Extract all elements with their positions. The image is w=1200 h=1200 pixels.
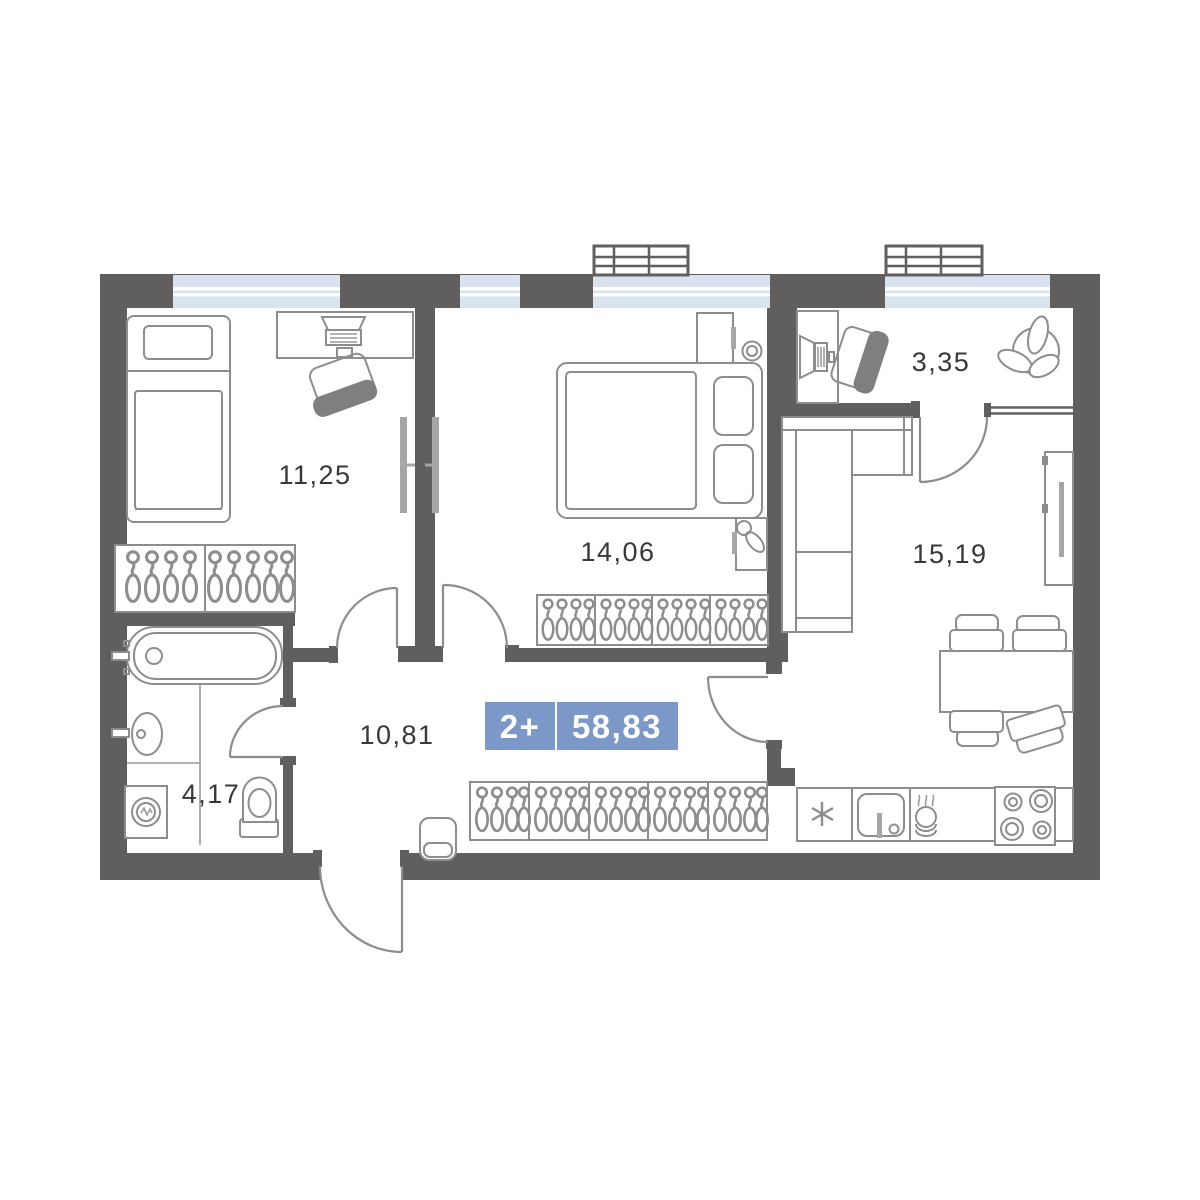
- wall-bottom-left: [100, 853, 320, 880]
- floorplan-page: 11,25 14,06 3,35 15,19 10,81 4,17 2+ 58,…: [0, 0, 1200, 1200]
- room-bathroom: [112, 627, 282, 845]
- total-area-label: 58,83: [572, 708, 662, 745]
- wardrobe-bedroom-1: [115, 545, 295, 612]
- door-bedroom-1: [337, 588, 397, 648]
- room-bedroom-1: [115, 312, 439, 612]
- door-study: [920, 417, 987, 482]
- door-bathroom: [230, 706, 283, 757]
- wall-hallway-top-right: [505, 648, 777, 662]
- dining-set: [940, 615, 1073, 755]
- wardrobe-hallway: [470, 782, 768, 840]
- table-lamp-icon: [743, 342, 762, 361]
- wall-study-left: [767, 308, 797, 407]
- bathtub-tap-icon: [112, 652, 129, 660]
- radiator-panel-left: [400, 417, 407, 513]
- dining-chair: [950, 615, 1003, 651]
- wall-jamb-kitchen-door-top: [766, 662, 782, 674]
- wall-bathroom-right-lower: [283, 756, 293, 853]
- nightstand-bottom: [732, 518, 767, 570]
- tall-cabinet: [1043, 452, 1073, 585]
- wall-hallway-top-left: [283, 648, 337, 662]
- window-bedroom-2-small: [460, 275, 520, 308]
- double-bed: [557, 363, 762, 518]
- wall-jamb-entrance-right: [400, 850, 409, 867]
- wall-living-left-lower: [767, 742, 781, 770]
- single-bed: [127, 316, 230, 522]
- desk: [277, 312, 413, 358]
- floorplan-drawing: 11,25 14,06 3,35 15,19 10,81 4,17 2+ 58,…: [0, 0, 1200, 1200]
- wall-bottom-right: [402, 853, 1100, 880]
- door-kitchen-living: [708, 677, 768, 742]
- corner-sofa: [782, 417, 912, 632]
- wall-partition-foot: [398, 646, 443, 662]
- apartment-badge: 2+ 58,83: [485, 702, 678, 750]
- washing-machine: [125, 786, 167, 838]
- wall-study-bottom: [767, 403, 915, 417]
- entrance-bench: [420, 818, 456, 860]
- room-area-label-bedroom-1: 11,25: [278, 460, 351, 490]
- window-bedroom-1: [173, 275, 340, 308]
- bathtub: [112, 627, 282, 684]
- balcony-railing-1: [594, 246, 688, 275]
- dining-chair: [950, 711, 1003, 746]
- door-entrance: [320, 866, 402, 952]
- wall-right: [1073, 274, 1100, 880]
- dining-table: [940, 651, 1073, 712]
- dining-chair: [1013, 616, 1066, 651]
- wardrobe-bedroom-2: [537, 595, 768, 645]
- radiator-panel-right: [432, 417, 439, 513]
- study-desk: [797, 311, 838, 403]
- room-bedroom-2: [537, 313, 768, 645]
- balcony-railing-2: [886, 246, 982, 275]
- room-area-label-study: 3,35: [912, 347, 971, 377]
- balcony-railings: [594, 246, 982, 275]
- wall-jamb-bedroom1-door: [329, 646, 338, 663]
- room-hallway: [420, 782, 768, 860]
- room-area-label-kitchen-living: 15,19: [912, 539, 987, 569]
- room-area-label-hallway: 10,81: [359, 720, 434, 750]
- wall-kitchen-step: [767, 768, 795, 786]
- wall-jamb-study-door: [911, 401, 920, 418]
- window-bedroom-2: [593, 275, 770, 308]
- office-chair: [301, 351, 380, 420]
- apartment-type-label: 2+: [500, 708, 541, 745]
- wall-jamb-entrance-left: [313, 850, 322, 867]
- windows: [173, 275, 1050, 308]
- nightstand-top: [697, 313, 762, 363]
- toilet: [240, 778, 278, 838]
- window-study: [885, 275, 1050, 308]
- wall-glass-partition-cap: [984, 403, 991, 417]
- stove: [995, 787, 1055, 845]
- plant-icon: [995, 314, 1062, 381]
- kitchen-counter: [797, 787, 1073, 845]
- door-bedroom-2: [443, 585, 507, 648]
- room-area-label-bathroom: 4,17: [182, 779, 241, 809]
- room-area-label-bedroom-2: 14,06: [580, 537, 655, 567]
- sink-tap-icon: [112, 729, 129, 737]
